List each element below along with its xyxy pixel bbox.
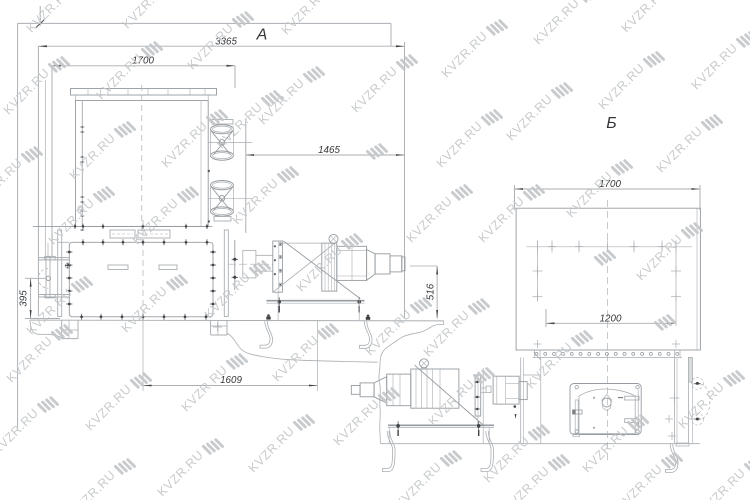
svg-text:1200: 1200: [600, 313, 622, 324]
svg-text:395: 395: [19, 290, 30, 307]
svg-text:1465: 1465: [318, 145, 340, 156]
svg-text:А: А: [256, 27, 268, 44]
svg-text:516: 516: [426, 283, 437, 300]
svg-text:Б: Б: [606, 115, 616, 132]
